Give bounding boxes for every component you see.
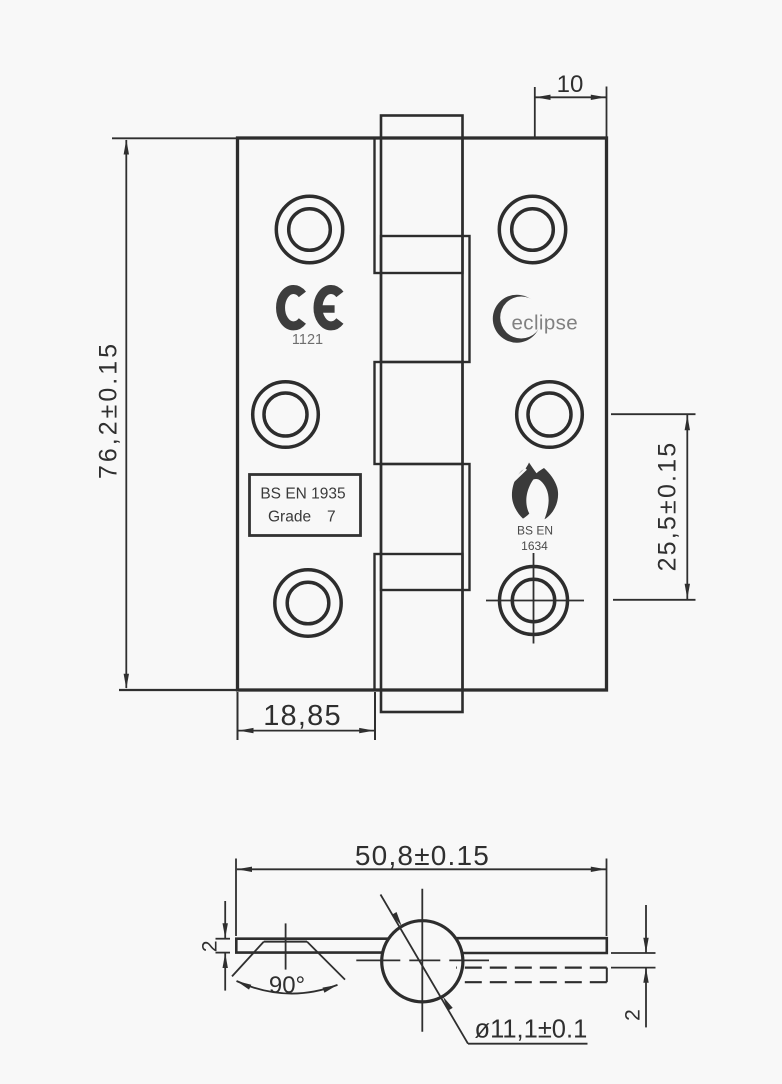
svg-text:eclipse: eclipse — [512, 312, 579, 335]
svg-text:25,5±0.15: 25,5±0.15 — [654, 441, 682, 572]
svg-text:BS EN 1935: BS EN 1935 — [260, 486, 345, 503]
svg-text:1634: 1634 — [521, 539, 548, 553]
svg-text:Grade: Grade — [268, 509, 311, 526]
svg-text:10: 10 — [557, 71, 584, 98]
svg-text:2: 2 — [622, 1009, 645, 1021]
svg-text:7: 7 — [327, 509, 336, 526]
svg-text:1121: 1121 — [292, 332, 323, 348]
svg-text:2: 2 — [198, 940, 221, 952]
svg-text:76,2±0.15: 76,2±0.15 — [95, 341, 123, 479]
svg-text:90°: 90° — [269, 972, 305, 999]
svg-text:ø11,1±0.1: ø11,1±0.1 — [475, 1016, 588, 1044]
svg-text:BS EN: BS EN — [517, 524, 553, 538]
svg-text:18,85: 18,85 — [263, 700, 342, 732]
svg-text:50,8±0.15: 50,8±0.15 — [355, 840, 490, 871]
